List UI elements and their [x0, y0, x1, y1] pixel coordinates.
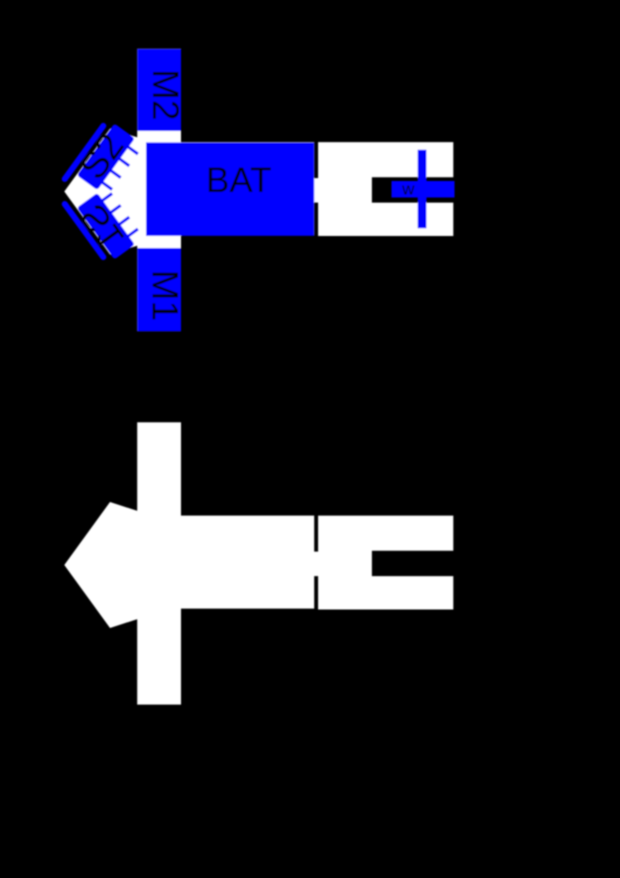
svg-text:M2: M2 — [145, 69, 186, 120]
svg-text:w: w — [401, 179, 415, 198]
svg-text:BAT: BAT — [206, 161, 271, 200]
svg-text:M1: M1 — [145, 270, 186, 321]
